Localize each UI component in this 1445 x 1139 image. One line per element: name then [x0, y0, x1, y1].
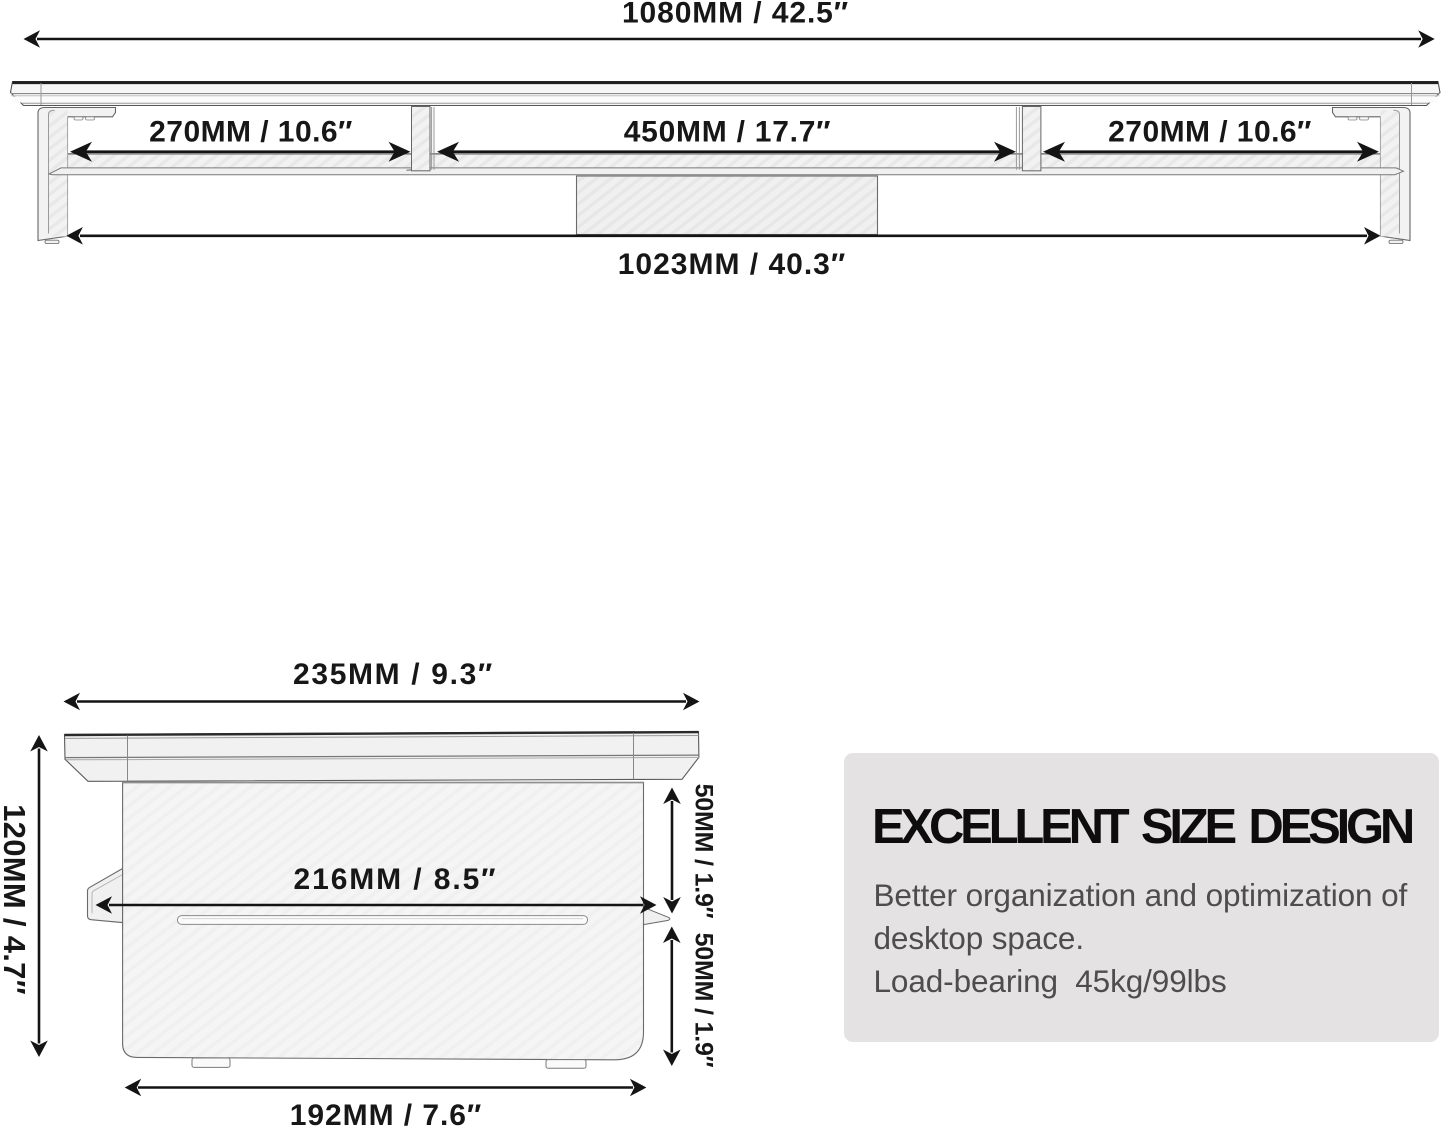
svg-text:192MM / 7.6″: 192MM / 7.6″ — [290, 1099, 483, 1132]
svg-text:desktop space.: desktop space. — [874, 920, 1085, 956]
svg-text:1023MM / 40.3″: 1023MM / 40.3″ — [618, 248, 846, 281]
svg-text:50MM / 1.9″: 50MM / 1.9″ — [690, 933, 718, 1068]
svg-text:50MM / 1.9″: 50MM / 1.9″ — [690, 784, 718, 919]
svg-text:EXCELLENT SIZE DESIGN: EXCELLENT SIZE DESIGN — [872, 800, 1413, 854]
svg-text:Load-bearing 45kg/99lbs: Load-bearing 45kg/99lbs — [874, 963, 1227, 999]
svg-text:270MM / 10.6″: 270MM / 10.6″ — [1108, 116, 1312, 149]
svg-text:270MM / 10.6″: 270MM / 10.6″ — [149, 116, 353, 149]
svg-text:Better organization and optimi: Better organization and optimization of — [874, 877, 1408, 913]
svg-text:450MM / 17.7″: 450MM / 17.7″ — [624, 116, 832, 149]
svg-text:216MM / 8.5″: 216MM / 8.5″ — [294, 863, 498, 896]
svg-text:120MM / 4.7″: 120MM / 4.7″ — [0, 804, 32, 995]
svg-text:235MM / 9.3″: 235MM / 9.3″ — [293, 658, 494, 691]
svg-text:1080MM / 42.5″: 1080MM / 42.5″ — [622, 0, 849, 30]
